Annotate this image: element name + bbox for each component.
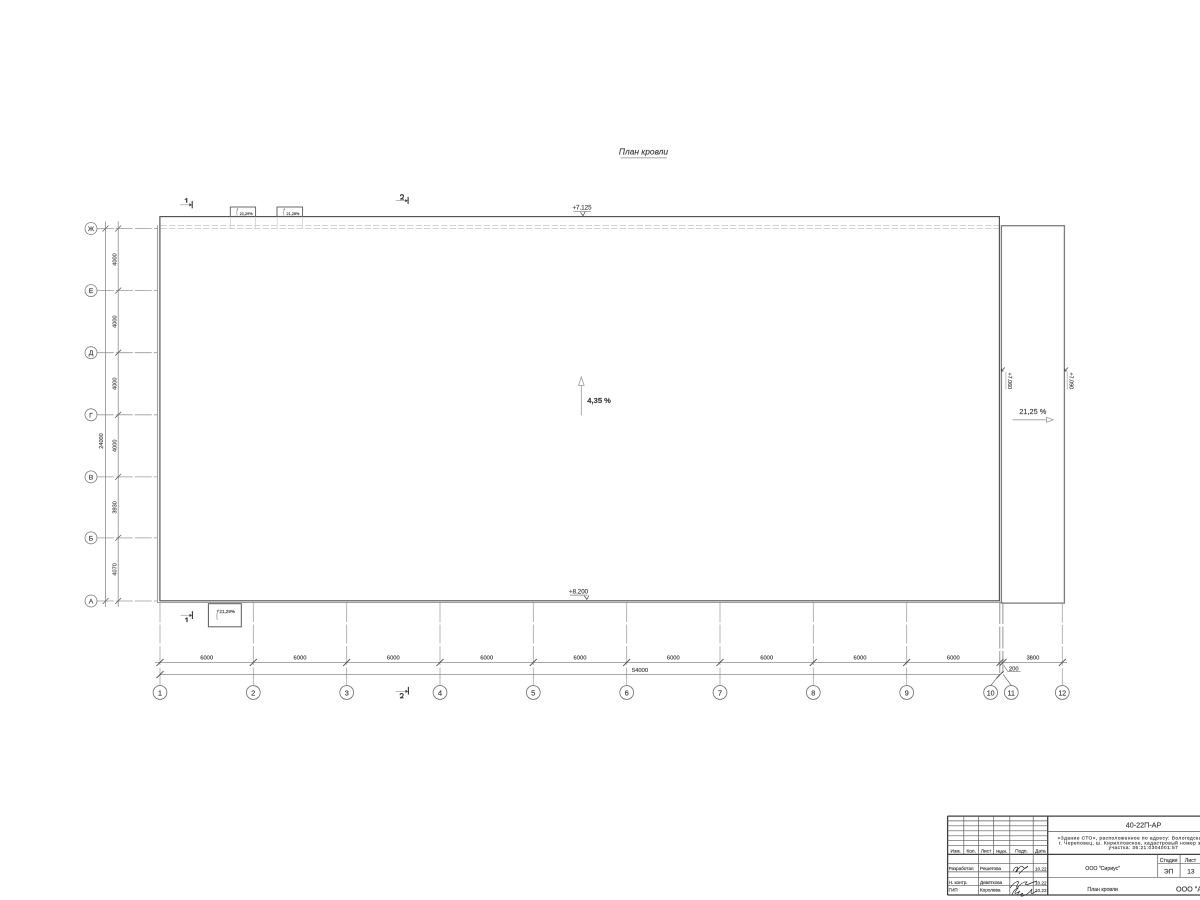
svg-text:24000: 24000 bbox=[99, 433, 105, 449]
svg-text:Стадия: Стадия bbox=[1160, 858, 1178, 864]
svg-text:1: 1 bbox=[158, 688, 162, 697]
svg-text:Лист: Лист bbox=[1185, 858, 1197, 864]
svg-text:6000: 6000 bbox=[667, 656, 680, 662]
svg-text:13: 13 bbox=[1187, 869, 1195, 876]
svg-text:Н. контр.: Н. контр. bbox=[949, 880, 968, 885]
svg-text:+7.060: +7.060 bbox=[1006, 373, 1012, 390]
svg-text:+7.125: +7.125 bbox=[572, 205, 592, 212]
svg-text:4000: 4000 bbox=[112, 315, 118, 327]
svg-text:6000: 6000 bbox=[294, 656, 307, 662]
svg-text:Девяткова: Девяткова bbox=[980, 880, 1003, 885]
svg-text:ООО "Ар: ООО "Ар bbox=[1176, 884, 1200, 893]
svg-text:Дата: Дата bbox=[1035, 849, 1046, 855]
svg-text:21,29%: 21,29% bbox=[240, 212, 254, 216]
svg-text:3: 3 bbox=[345, 688, 349, 697]
svg-text:54000: 54000 bbox=[632, 668, 648, 674]
svg-text:21,25 %: 21,25 % bbox=[1019, 407, 1047, 416]
svg-text:ЭП: ЭП bbox=[1164, 869, 1174, 876]
svg-text:6000: 6000 bbox=[574, 656, 587, 662]
svg-text:7: 7 bbox=[718, 688, 722, 697]
svg-text:+7.090: +7.090 bbox=[1068, 373, 1074, 390]
svg-text:Е: Е bbox=[89, 288, 94, 295]
svg-text:4000: 4000 bbox=[112, 377, 118, 389]
svg-text:9: 9 bbox=[905, 688, 909, 697]
svg-text:21,29%: 21,29% bbox=[219, 609, 235, 614]
svg-text:ООО "Сириус": ООО "Сириус" bbox=[1085, 866, 1120, 872]
svg-text:4000: 4000 bbox=[112, 253, 118, 265]
svg-text:4070: 4070 bbox=[112, 563, 118, 575]
svg-text:11: 11 bbox=[1008, 690, 1015, 697]
svg-text:6000: 6000 bbox=[760, 656, 773, 662]
svg-text:Разработал: Разработал bbox=[949, 866, 974, 871]
svg-text:6000: 6000 bbox=[387, 656, 400, 662]
svg-text:10.22: 10.22 bbox=[1035, 888, 1047, 893]
svg-text:Подп.: Подп. bbox=[1015, 849, 1028, 855]
svg-text:№док.: №док. bbox=[996, 849, 1007, 853]
svg-text:2: 2 bbox=[251, 688, 255, 697]
svg-text:4,35 %: 4,35 % bbox=[587, 396, 611, 405]
svg-text:А: А bbox=[89, 599, 94, 606]
svg-text:6: 6 bbox=[625, 688, 629, 697]
svg-text:5: 5 bbox=[531, 688, 535, 697]
svg-text:3800: 3800 bbox=[1026, 656, 1039, 662]
svg-text:План кровли: План кровли bbox=[619, 147, 668, 157]
svg-text:40-22П-АР: 40-22П-АР bbox=[1126, 820, 1162, 829]
svg-text:Б: Б bbox=[89, 535, 94, 542]
svg-text:10.22: 10.22 bbox=[1035, 866, 1047, 871]
svg-text:8: 8 bbox=[811, 688, 815, 697]
svg-text:6000: 6000 bbox=[200, 656, 213, 662]
svg-text:21,28%: 21,28% bbox=[287, 212, 301, 216]
svg-text:6000: 6000 bbox=[480, 656, 493, 662]
svg-text:Лист: Лист bbox=[981, 849, 992, 855]
svg-text:10: 10 bbox=[987, 690, 995, 697]
svg-text:План кровли: План кровли bbox=[1087, 887, 1118, 893]
svg-text:Королева: Королева bbox=[980, 888, 1001, 893]
svg-text:6000: 6000 bbox=[854, 656, 867, 662]
svg-text:4: 4 bbox=[438, 688, 442, 697]
svg-text:200: 200 bbox=[1009, 666, 1019, 672]
svg-text:12: 12 bbox=[1058, 690, 1066, 697]
svg-text:Ж: Ж bbox=[88, 226, 95, 233]
svg-text:Изм.: Изм. bbox=[951, 849, 961, 855]
svg-text:ГИП: ГИП bbox=[949, 888, 958, 893]
svg-text:Решетова: Решетова bbox=[980, 866, 1002, 871]
svg-text:В: В bbox=[89, 474, 94, 481]
svg-text:Г: Г bbox=[89, 412, 93, 419]
svg-text:3930: 3930 bbox=[112, 501, 118, 513]
svg-text:Д: Д bbox=[89, 350, 94, 357]
svg-text:4000: 4000 bbox=[112, 440, 118, 452]
svg-text:участка: 35:21:0304001:57: участка: 35:21:0304001:57 bbox=[1109, 845, 1179, 851]
svg-text:Кол.: Кол. bbox=[966, 849, 976, 855]
svg-text:+8.200: +8.200 bbox=[569, 589, 589, 596]
svg-text:6000: 6000 bbox=[947, 656, 960, 662]
